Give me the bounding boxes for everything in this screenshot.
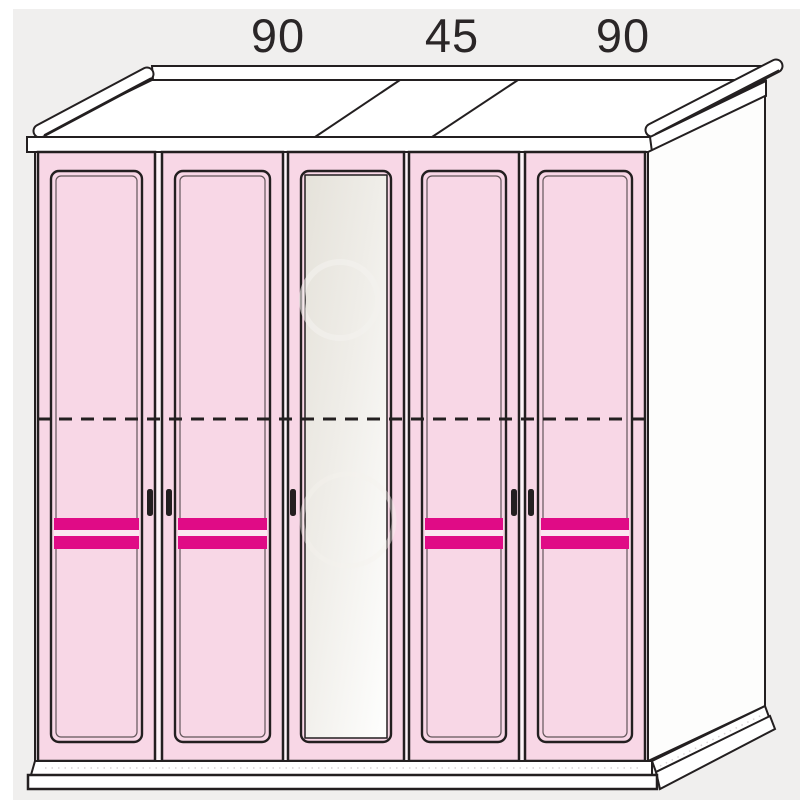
door-5-handle — [528, 489, 534, 516]
door-2-stripes — [178, 518, 267, 549]
door-4-face — [409, 152, 519, 761]
door-3-handle — [290, 489, 296, 516]
wardrobe-drawing: 90 45 90 — [0, 0, 800, 800]
door-1-stripes — [54, 518, 139, 549]
door-1-handle — [147, 489, 153, 516]
dimension-label-right: 90 — [596, 9, 650, 62]
door-5 — [525, 152, 645, 761]
furniture-diagram: 90 45 90 — [0, 0, 800, 800]
dimension-label-left: 90 — [251, 9, 305, 62]
door-4-handle — [511, 489, 517, 516]
side-panel — [648, 96, 765, 761]
door-4 — [409, 152, 519, 761]
back-cornice-band — [152, 66, 768, 80]
door-4-stripes — [425, 518, 503, 549]
door-2-handle — [166, 489, 172, 516]
wardrobe-top — [27, 66, 779, 152]
dimension-label-middle: 45 — [425, 9, 479, 62]
door-2 — [162, 152, 283, 761]
front-cornice-band — [27, 137, 655, 152]
door-5-stripes — [541, 518, 629, 549]
top-margin — [0, 0, 800, 9]
door-3-mirror — [288, 152, 404, 761]
front-plinth-lower — [28, 775, 657, 789]
dimension-labels: 90 45 90 — [251, 9, 650, 62]
door-1 — [38, 152, 155, 761]
left-margin — [0, 0, 13, 800]
